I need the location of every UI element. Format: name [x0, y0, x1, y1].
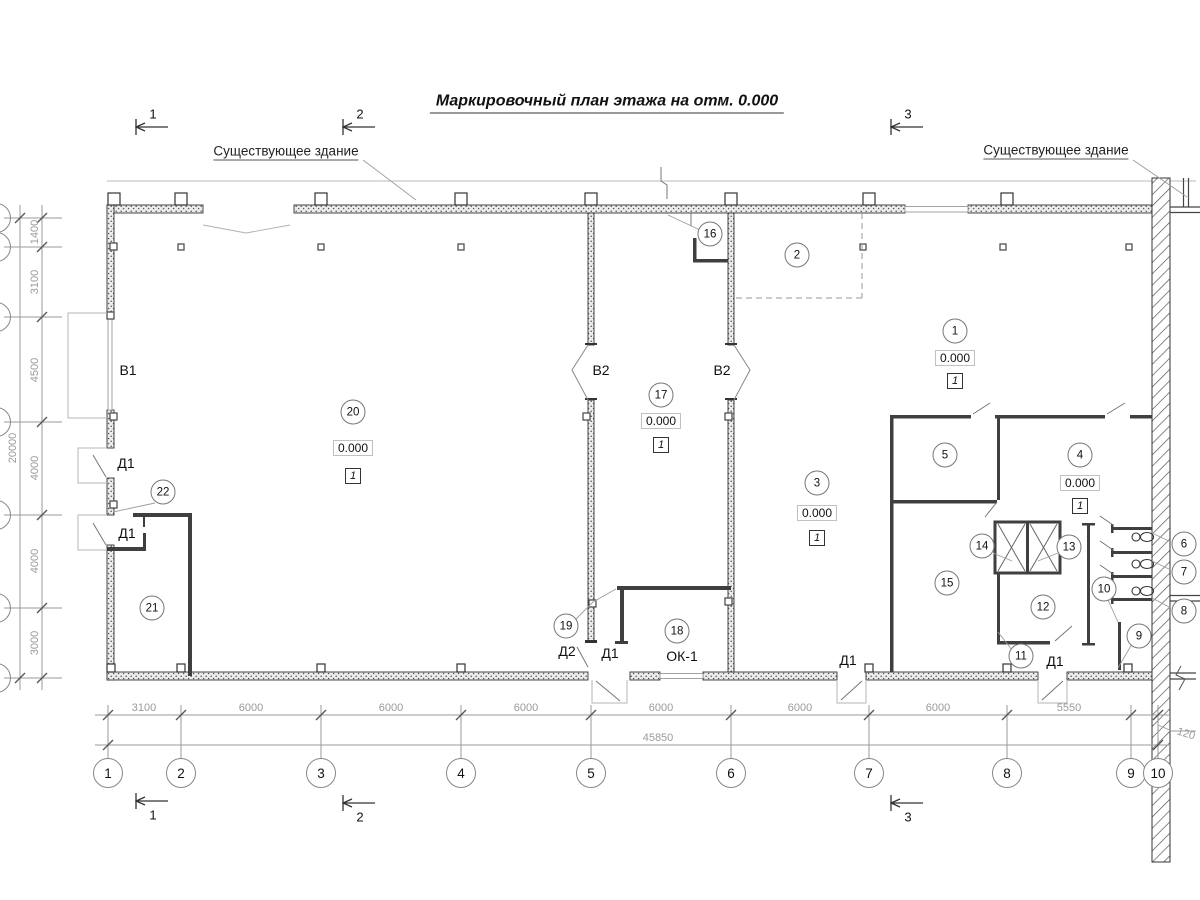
page-title: Маркировочный план этажа на отм. 0.000 — [430, 93, 784, 114]
category-mark: 1 — [947, 373, 963, 389]
room-number-circle: 13 — [1057, 535, 1082, 560]
dimension-label: 6000 — [514, 702, 538, 714]
annotation-existing-building: Существующее здание — [213, 144, 358, 161]
opening-label-д1: Д1 — [601, 645, 618, 661]
dimension-label: 1400 — [29, 220, 41, 244]
room-number-circle: 5 — [933, 443, 958, 468]
room-number-circle: 21 — [140, 596, 165, 621]
axis-bubble-2: 2 — [166, 758, 196, 788]
axis-bubble-left — [0, 593, 11, 623]
room-number-circle: 2 — [785, 243, 810, 268]
dimension-label: 4500 — [29, 358, 41, 382]
elevation-mark: 0.000 — [935, 350, 975, 366]
category-mark: 1 — [653, 437, 669, 453]
room-number-circle: 12 — [1031, 595, 1056, 620]
room-number-circle: 20 — [341, 400, 366, 425]
room-number-circle: 9 — [1127, 624, 1152, 649]
opening-label-д1: Д1 — [1046, 653, 1063, 669]
opening-label-в1: В1 — [119, 362, 136, 378]
section-number-1: 1 — [149, 107, 156, 122]
dimension-label: 4000 — [29, 456, 41, 480]
axis-bubble-1: 1 — [93, 758, 123, 788]
elevation-mark: 0.000 — [333, 440, 373, 456]
opening-label-в2: В2 — [713, 362, 730, 378]
axis-bubble-left — [0, 232, 11, 262]
dimension-label: 3000 — [29, 631, 41, 655]
opening-label-ок-1: ОК-1 — [666, 648, 698, 664]
axis-bubble-5: 5 — [576, 758, 606, 788]
section-number-3: 3 — [904, 107, 911, 122]
dimension-label: 6000 — [379, 702, 403, 714]
room-number-circle: 14 — [970, 534, 995, 559]
dimension-label: 6000 — [649, 702, 673, 714]
category-mark: 1 — [345, 468, 361, 484]
section-number-1: 1 — [149, 808, 156, 823]
dimension-label: 4000 — [29, 549, 41, 573]
dimension-label-overall: 20000 — [7, 433, 19, 464]
room-number-circle: 15 — [935, 571, 960, 596]
room-number-circle: 1 — [943, 319, 968, 344]
room-number-circle: 22 — [151, 480, 176, 505]
axis-bubble-8: 8 — [992, 758, 1022, 788]
room-number-circle: 17 — [649, 383, 674, 408]
dimension-label: 6000 — [926, 702, 950, 714]
elevation-mark: 0.000 — [797, 505, 837, 521]
room-number-circle: 3 — [805, 471, 830, 496]
room-number-circle: 16 — [698, 222, 723, 247]
axis-bubble-3: 3 — [306, 758, 336, 788]
opening-label-д2: Д2 — [558, 643, 575, 659]
section-number-2: 2 — [356, 107, 363, 122]
room-number-circle: 4 — [1068, 443, 1093, 468]
section-number-2: 2 — [356, 810, 363, 825]
room-number-circle: 6 — [1172, 532, 1197, 557]
room-number-circle: 8 — [1172, 599, 1197, 624]
dimension-label: 3100 — [132, 702, 156, 714]
dimension-label: 3100 — [29, 270, 41, 294]
elevation-mark: 0.000 — [1060, 475, 1100, 491]
opening-label-д1: Д1 — [118, 525, 135, 541]
axis-bubble-6: 6 — [716, 758, 746, 788]
floor-plan-page: { "title": {"text": "Маркировочный план … — [0, 0, 1200, 900]
room-number-circle: 19 — [554, 614, 579, 639]
annotation-existing-building: Существующее здание — [983, 143, 1128, 160]
opening-label-д1: Д1 — [117, 455, 134, 471]
axis-bubble-9: 9 — [1116, 758, 1146, 788]
axis-bubble-4: 4 — [446, 758, 476, 788]
room-number-circle: 11 — [1009, 644, 1034, 669]
elevation-mark: 0.000 — [641, 413, 681, 429]
room-number-circle: 10 — [1092, 577, 1117, 602]
category-mark: 1 — [1072, 498, 1088, 514]
opening-label-д1: Д1 — [839, 652, 856, 668]
dimension-label-120: 120 — [1175, 726, 1196, 743]
room-number-circle: 18 — [665, 619, 690, 644]
axis-bubble-7: 7 — [854, 758, 884, 788]
dimension-label: 6000 — [788, 702, 812, 714]
text-overlay: Маркировочный план этажа на отм. 0.000 С… — [0, 0, 1200, 900]
axis-bubble-left — [0, 302, 11, 332]
section-number-3: 3 — [904, 810, 911, 825]
axis-bubble-10: 10 — [1143, 758, 1173, 788]
dimension-label-overall: 45850 — [643, 732, 674, 744]
dimension-label: 6000 — [239, 702, 263, 714]
category-mark: 1 — [809, 530, 825, 546]
room-number-circle: 7 — [1172, 560, 1197, 585]
axis-bubble-left — [0, 663, 11, 693]
opening-label-в2: В2 — [592, 362, 609, 378]
dimension-label: 5550 — [1057, 702, 1081, 714]
axis-bubble-left — [0, 203, 11, 233]
axis-bubble-left — [0, 500, 11, 530]
